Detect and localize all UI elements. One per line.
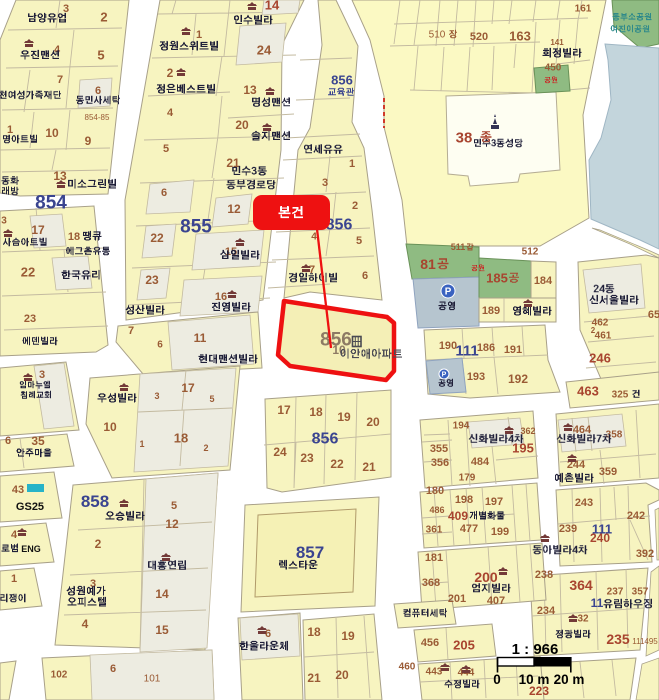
svg-text:463: 463: [577, 384, 599, 399]
svg-text:161: 161: [575, 4, 592, 15]
svg-text:235: 235: [606, 631, 630, 647]
svg-text:2: 2: [95, 537, 102, 551]
svg-text:4: 4: [82, 617, 89, 631]
svg-text:10 m: 10 m: [519, 672, 550, 687]
svg-text:357: 357: [632, 587, 649, 598]
svg-text:6: 6: [5, 435, 11, 447]
svg-text:P: P: [442, 372, 447, 379]
svg-text:464: 464: [573, 424, 592, 436]
svg-text:356: 356: [431, 457, 449, 469]
svg-text:6: 6: [362, 270, 368, 282]
svg-text:43: 43: [12, 484, 24, 496]
svg-text:856: 856: [312, 431, 339, 448]
svg-text:6: 6: [110, 663, 116, 675]
svg-text:460: 460: [399, 662, 416, 673]
svg-text:19: 19: [337, 410, 351, 424]
svg-text:6: 6: [157, 340, 163, 351]
svg-text:239: 239: [559, 523, 577, 535]
svg-text:364: 364: [569, 577, 593, 593]
svg-text:4: 4: [167, 107, 174, 119]
svg-text:5: 5: [163, 143, 169, 155]
svg-text:23: 23: [24, 313, 36, 325]
svg-text:6: 6: [95, 85, 101, 97]
svg-text:198: 198: [455, 494, 473, 506]
svg-text:3: 3: [154, 391, 159, 401]
svg-text:0: 0: [493, 672, 501, 687]
svg-text:2: 2: [167, 66, 174, 80]
svg-text:243: 243: [575, 497, 593, 509]
svg-text:194: 194: [453, 421, 470, 432]
svg-text:7: 7: [57, 74, 63, 86]
svg-text:1: 1: [196, 29, 202, 41]
svg-text:22: 22: [330, 457, 344, 471]
svg-text:23: 23: [145, 273, 159, 287]
svg-text:5: 5: [356, 235, 362, 247]
svg-text:191: 191: [504, 344, 522, 356]
svg-text:14: 14: [265, 0, 280, 13]
svg-text:24: 24: [273, 445, 287, 459]
svg-text:20: 20: [235, 118, 249, 132]
svg-text:24: 24: [257, 43, 272, 58]
svg-text:19: 19: [341, 629, 355, 643]
svg-text:111: 111: [455, 342, 478, 359]
svg-text:1: 1: [349, 158, 355, 170]
svg-text:185: 185: [486, 271, 508, 286]
svg-text:11: 11: [591, 596, 604, 610]
svg-text:246: 246: [589, 351, 611, 366]
svg-text:22: 22: [21, 265, 35, 280]
svg-text:855: 855: [180, 217, 212, 238]
svg-text:23: 23: [300, 451, 314, 465]
svg-text:15: 15: [155, 623, 169, 637]
svg-text:520: 520: [470, 31, 488, 43]
svg-text:359: 359: [599, 466, 617, 478]
svg-text:3: 3: [1, 216, 7, 227]
svg-text:GS25: GS25: [16, 501, 44, 513]
svg-text:10: 10: [45, 126, 59, 140]
svg-text:5: 5: [171, 500, 177, 512]
svg-text:17: 17: [277, 403, 291, 417]
svg-text:163: 163: [509, 29, 531, 44]
svg-text:242: 242: [627, 510, 645, 522]
svg-text:65: 65: [648, 309, 659, 321]
svg-text:2: 2: [203, 443, 208, 453]
svg-text:14: 14: [155, 587, 169, 601]
svg-text:461: 461: [595, 331, 612, 342]
svg-text:477: 477: [460, 523, 478, 535]
svg-text:81: 81: [420, 256, 436, 272]
svg-text:200: 200: [474, 569, 498, 585]
svg-text:3: 3: [322, 177, 328, 189]
svg-text:512: 512: [522, 247, 539, 258]
svg-text:857: 857: [296, 543, 324, 562]
svg-text:361: 361: [426, 525, 443, 536]
svg-text:325: 325: [612, 390, 629, 401]
svg-text:240: 240: [590, 531, 610, 545]
svg-text:510: 510: [429, 30, 446, 41]
svg-text:450: 450: [545, 63, 562, 74]
svg-text:355: 355: [430, 443, 448, 455]
svg-text:4: 4: [311, 232, 317, 243]
svg-text:1: 1: [11, 573, 17, 585]
svg-text:35: 35: [31, 434, 45, 448]
svg-text:199: 199: [491, 526, 509, 538]
svg-text:392: 392: [636, 548, 654, 560]
svg-text:192: 192: [508, 372, 528, 386]
svg-text:184: 184: [534, 275, 553, 287]
svg-text:179: 179: [459, 473, 476, 484]
svg-text:38: 38: [456, 129, 473, 146]
svg-text:5: 5: [97, 48, 104, 63]
svg-text:484: 484: [471, 456, 490, 468]
svg-text:P: P: [445, 287, 452, 298]
svg-text:197: 197: [485, 496, 503, 508]
svg-text:854-85: 854-85: [85, 113, 110, 122]
svg-text:181: 181: [425, 552, 443, 564]
svg-text:4: 4: [11, 529, 18, 541]
svg-text:10: 10: [103, 420, 117, 434]
svg-text:ENG: ENG: [21, 544, 41, 554]
svg-text:18: 18: [307, 625, 321, 639]
svg-text:854: 854: [35, 193, 67, 214]
svg-text:1 : 966: 1 : 966: [512, 641, 559, 658]
svg-text:858: 858: [81, 492, 109, 511]
svg-text:193: 193: [467, 371, 485, 383]
svg-text:237: 237: [607, 587, 624, 598]
svg-text:12: 12: [227, 202, 241, 216]
svg-text:511: 511: [451, 242, 466, 252]
svg-text:18: 18: [309, 405, 323, 419]
svg-text:443: 443: [426, 667, 443, 678]
svg-text:2: 2: [352, 200, 358, 212]
svg-text:32: 32: [577, 614, 589, 625]
svg-text:20: 20: [366, 415, 380, 429]
svg-text:17: 17: [181, 381, 195, 395]
svg-text:189: 189: [482, 305, 500, 317]
svg-text:102: 102: [51, 670, 68, 681]
svg-text:3: 3: [39, 369, 45, 381]
svg-text:20: 20: [335, 668, 349, 682]
svg-text:12: 12: [165, 517, 179, 531]
svg-text:407: 407: [487, 595, 505, 607]
svg-text:486: 486: [429, 505, 444, 515]
svg-text:180: 180: [426, 485, 444, 497]
svg-text:2: 2: [100, 10, 107, 25]
svg-text:22: 22: [150, 231, 164, 245]
svg-text:238: 238: [535, 569, 553, 581]
svg-text:21: 21: [362, 460, 376, 474]
svg-text:368: 368: [422, 577, 440, 589]
svg-text:201: 201: [448, 593, 466, 605]
svg-text:1: 1: [139, 439, 144, 449]
svg-text:16: 16: [215, 291, 227, 303]
svg-text:20 m: 20 m: [554, 672, 585, 687]
svg-text:141: 141: [550, 38, 564, 47]
svg-text:6: 6: [161, 187, 167, 199]
svg-text:362: 362: [520, 426, 535, 436]
svg-text:186: 186: [477, 342, 495, 354]
svg-text:17: 17: [31, 223, 45, 237]
svg-text:7: 7: [128, 325, 134, 337]
svg-text:111495: 111495: [632, 637, 658, 646]
svg-text:21: 21: [307, 671, 321, 685]
svg-text:205: 205: [453, 638, 475, 653]
svg-text:856: 856: [331, 73, 353, 88]
svg-text:5: 5: [209, 394, 214, 404]
svg-text:1: 1: [7, 124, 13, 136]
svg-text:13: 13: [243, 83, 257, 97]
svg-text:234: 234: [537, 605, 556, 617]
svg-text:9: 9: [85, 134, 92, 148]
svg-text:101: 101: [144, 674, 161, 685]
svg-text:18: 18: [68, 231, 80, 243]
svg-text:18: 18: [174, 431, 188, 446]
svg-text:195: 195: [512, 441, 534, 456]
svg-text:11: 11: [194, 331, 207, 345]
svg-text:409: 409: [448, 509, 468, 523]
svg-text:456: 456: [421, 637, 439, 649]
svg-text:358: 358: [606, 430, 623, 441]
